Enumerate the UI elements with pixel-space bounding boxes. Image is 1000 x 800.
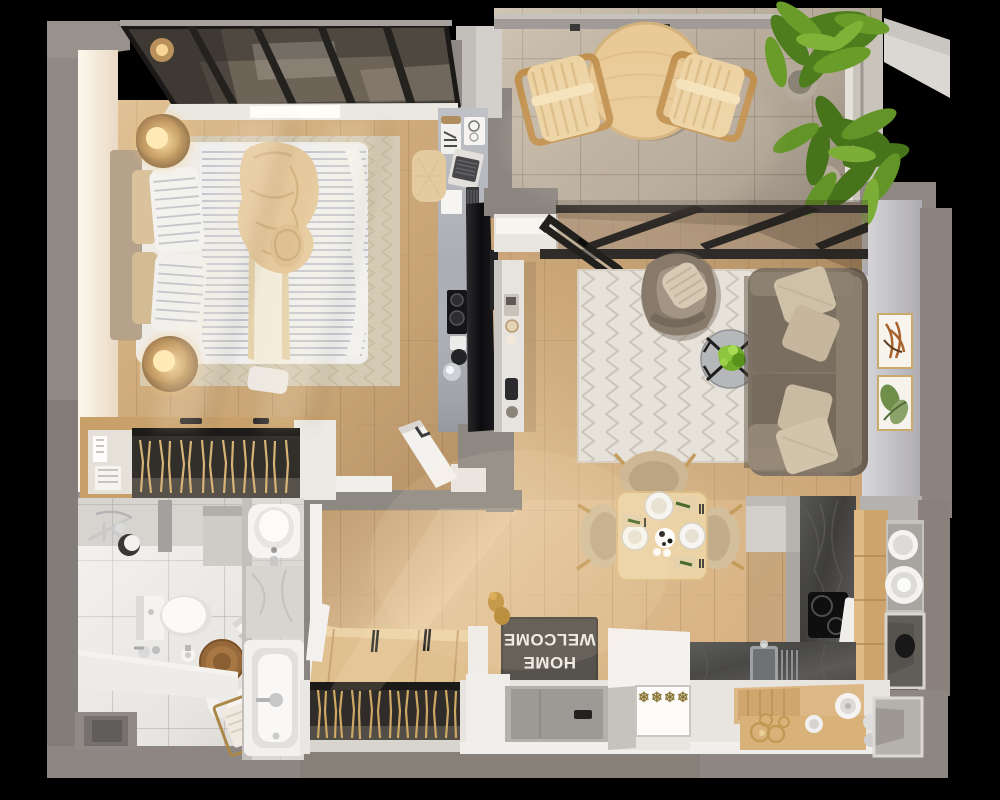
svg-text:❄: ❄ bbox=[677, 689, 689, 705]
svg-text:❄: ❄ bbox=[664, 689, 676, 705]
svg-text:❄: ❄ bbox=[651, 689, 663, 705]
svg-text:❄: ❄ bbox=[638, 689, 650, 705]
